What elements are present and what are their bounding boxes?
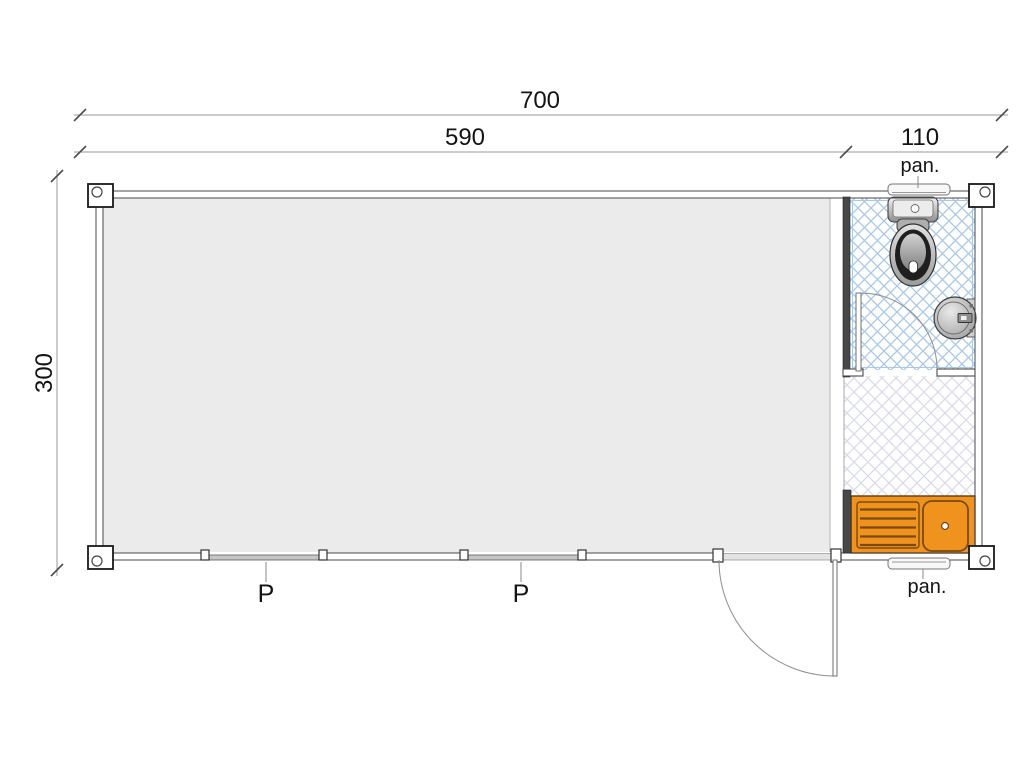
entrance-door xyxy=(719,560,837,676)
dim-label-700: 700 xyxy=(520,87,560,114)
window-annotation-2: P xyxy=(513,562,530,608)
dimension-depth: 300 xyxy=(31,170,63,576)
dimension-module-widths: 590 110 xyxy=(74,124,1008,158)
kitchen-counter xyxy=(851,496,975,553)
corner-fitting-bottom-right xyxy=(969,546,994,569)
wash-basin-icon xyxy=(934,297,976,339)
counter-side-wall xyxy=(843,490,851,553)
window-p1-label: P xyxy=(258,580,275,608)
dim-label-590: 590 xyxy=(445,124,485,151)
bathroom-divider-wall xyxy=(843,369,975,376)
pan-bottom-label: pan. xyxy=(908,576,947,598)
main-room-floor xyxy=(103,198,830,553)
sink-drain xyxy=(942,523,949,530)
window-p2-label: P xyxy=(513,580,530,608)
corner-fitting-bottom-left xyxy=(88,546,113,569)
dim-label-110: 110 xyxy=(901,124,939,151)
floor-plan-canvas: 700 590 110 300 pan. pan. P P xyxy=(0,0,1024,768)
toilet-icon xyxy=(888,197,938,286)
corner-fitting-top-left xyxy=(88,184,113,207)
floor-plan-drawing: 700 590 110 300 pan. pan. P P xyxy=(0,0,1024,768)
bathroom-door-leaf xyxy=(856,293,861,371)
pan-window-bottom xyxy=(888,558,950,569)
window-annotation-1: P xyxy=(258,562,275,608)
pan-annotation-top: pan. xyxy=(901,155,940,188)
corner-fitting-top-right xyxy=(969,184,994,207)
entrance-door-leaf xyxy=(833,560,837,676)
bathroom-partition-wall xyxy=(843,197,850,377)
pan-annotation-bottom: pan. xyxy=(908,569,947,598)
dim-label-300: 300 xyxy=(31,353,58,393)
pan-top-label: pan. xyxy=(901,155,940,177)
dimension-overall-width: 700 xyxy=(74,87,1008,121)
pan-window-top xyxy=(888,184,950,195)
